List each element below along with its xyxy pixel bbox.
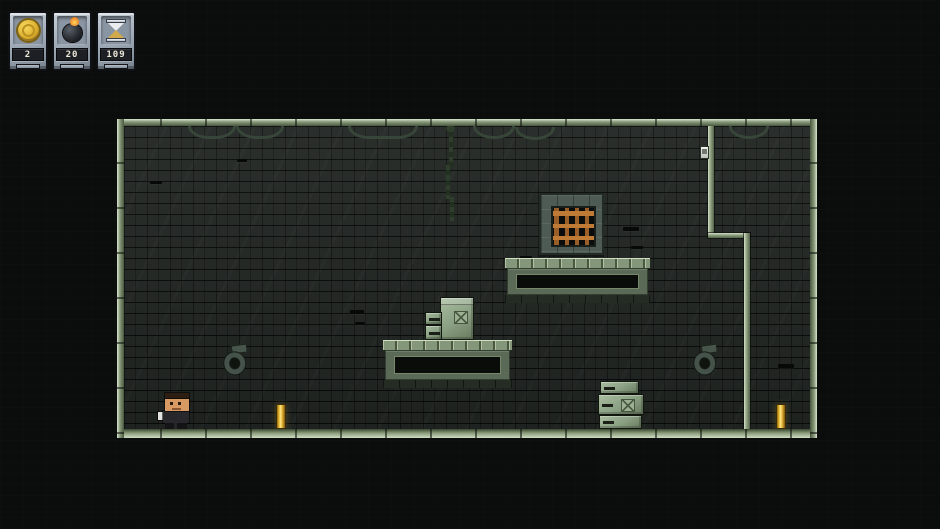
wall-crack [237,159,247,162]
crate-handle-slot [602,404,613,407]
badge-foot [60,64,84,69]
wall-crack [778,364,794,368]
player-eye [178,402,181,405]
crate-emblem [621,399,635,412]
vent-platform-upper [505,258,650,303]
gold-bar [776,404,786,429]
stat-badge-coins: 2 [8,11,48,71]
crate-lid [441,298,473,305]
player-character [158,393,192,429]
badge-icon-recess [13,16,43,45]
room-frame-top [117,119,817,126]
hourglass-cap-bottom [106,38,126,42]
partition-wall-upper [708,125,714,237]
wall-ring-left [220,343,254,380]
room-frame-right [810,119,817,438]
crate-small [425,325,442,340]
bomb-spark [70,17,79,26]
crate-flat [600,381,639,394]
timer-count: 109 [100,48,132,61]
platform-tile-top [505,258,650,268]
platform-base [383,380,512,388]
platform-vent-slot [516,274,639,289]
platform-vent-slot [394,356,501,374]
wall-lamp-core [702,149,707,154]
player-eye [170,402,173,405]
hanging-vine [450,197,454,221]
hourglass-sand-bottom [108,30,124,38]
crate-handle-slot [603,421,614,424]
platform-body [385,350,510,380]
gold-bar [276,404,286,429]
wall-crack [350,310,364,314]
hanging-vine [446,165,450,199]
crate-handle-slot [429,332,440,335]
hanging-vine [449,127,453,167]
chain-swag [348,126,418,139]
wall-crack [631,246,643,249]
platform-base [505,295,650,303]
hourglass-icon [106,19,126,42]
barred-window [539,193,604,255]
crate-flat [599,415,642,429]
badge-foot [104,64,128,69]
stat-badge-timer: 109 [96,11,136,71]
badge-icon-recess [57,16,87,45]
crate-handle-slot [429,318,440,321]
stat-badge-bombs: 20 [52,11,92,71]
level-room [117,119,817,438]
hud-stats: 2 20 109 [8,11,136,71]
platform-body [507,268,648,295]
bomb-count: 20 [56,48,88,61]
player-body [163,411,189,423]
wall-crack [623,227,639,231]
platform-tile-top [383,340,512,350]
room-frame-floor [117,429,817,438]
game-viewport[interactable]: 2 20 109 [0,0,940,529]
player-mouth [172,408,181,410]
window-bars [551,206,596,247]
wall-lamp [700,146,709,159]
coin-inner-ring [22,24,35,37]
badge-foot [16,64,40,69]
room-frame-left [117,119,124,438]
ring-circle [223,351,247,376]
crate-large [598,394,644,415]
crate-emblem [454,311,468,324]
wall-crack [355,322,365,325]
coin-count: 2 [12,48,44,61]
badge-icon-recess [101,16,131,45]
wall-ring-right [690,343,724,380]
wall-crack [150,181,162,184]
vent-platform-lower [383,340,512,388]
crate-large [440,297,474,340]
partition-wall-lower [744,233,750,429]
crate-small [425,312,442,325]
bomb-icon [63,24,82,42]
ring-circle [693,351,717,376]
crate-handle-slot [604,387,615,390]
coin-icon [18,20,39,41]
